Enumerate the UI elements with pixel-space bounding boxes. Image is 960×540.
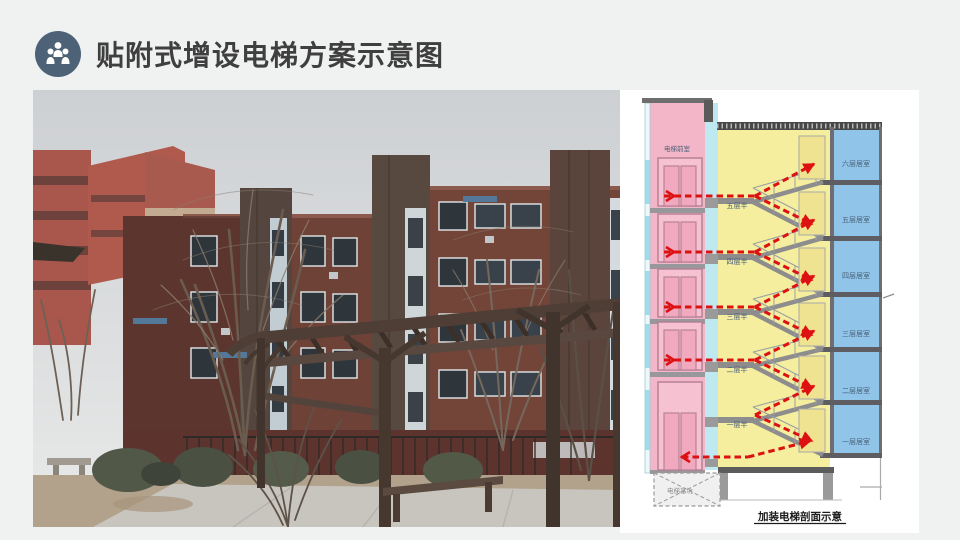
landing-label: 一层半 — [727, 420, 748, 429]
room-label: 一层居室 — [842, 437, 870, 446]
landing-label: 五层半 — [727, 201, 748, 210]
slide: 贴附式增设电梯方案示意图 — [0, 0, 960, 540]
residential-courtyard-photo — [33, 90, 621, 527]
page-title: 贴附式增设电梯方案示意图 — [96, 34, 444, 74]
room-label: 五层居室 — [842, 215, 870, 224]
room-label: 三层居室 — [842, 329, 870, 338]
elevator-top-label: 电梯前室 — [664, 144, 691, 153]
shaft-windows — [646, 160, 650, 450]
landing-label: 二层半 — [727, 365, 748, 374]
landing-label: 四层半 — [727, 257, 748, 266]
corridor-zone — [705, 103, 718, 470]
room-label: 四层居室 — [842, 271, 870, 280]
diagram-caption: 加装电梯剖面示意 — [757, 510, 842, 523]
elevator-cars — [650, 158, 705, 474]
elevator-section-diagram: 电梯前室 五层半 四层半 三层半 二层半 一层半 六层居室 五层居室 四层居室 … — [620, 90, 919, 533]
room-label: 二层居室 — [842, 386, 870, 395]
slide-header: 贴附式增设电梯方案示意图 — [34, 30, 444, 78]
pit-label: 电梯基坑 — [667, 486, 694, 495]
people-group-icon — [34, 30, 82, 78]
room-label: 六层居室 — [842, 159, 870, 168]
landing-label: 三层半 — [727, 312, 748, 321]
